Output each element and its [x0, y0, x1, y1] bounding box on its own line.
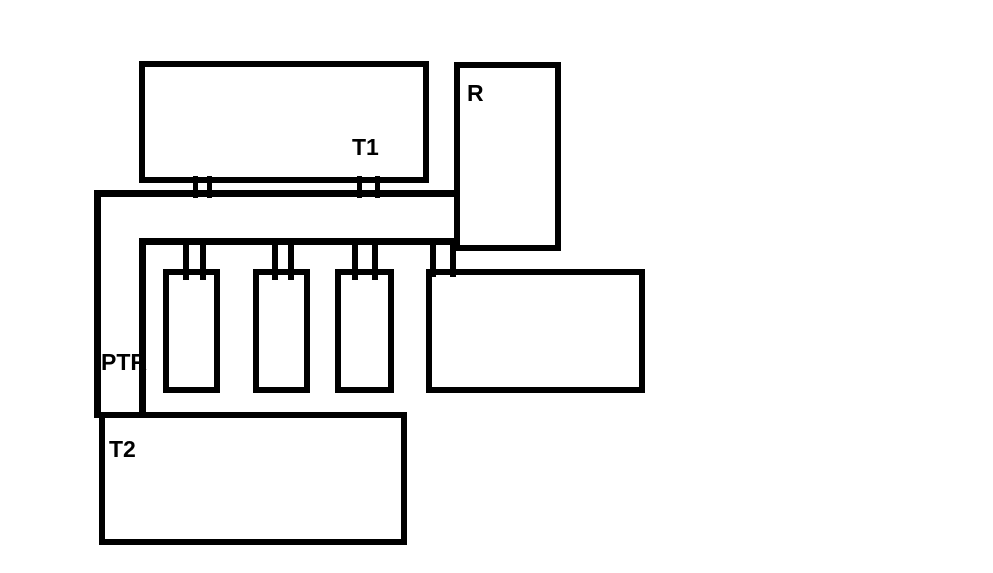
t1-label: T1 — [352, 136, 379, 159]
tube3-connector-left-line — [352, 240, 358, 280]
tube-2 — [253, 269, 310, 393]
right-block — [426, 269, 645, 393]
diagram-canvas: T1 R PTR T2 — [0, 0, 993, 573]
t1-connector-b-right-line — [375, 176, 380, 198]
ptr-label: PTR — [101, 351, 147, 374]
tube1-connector-left-line — [183, 240, 189, 280]
tube3-connector-right-line — [372, 240, 378, 280]
tube2-connector-left-line — [272, 240, 278, 280]
tube2-connector-right-line — [288, 240, 294, 280]
tube-1 — [163, 269, 220, 393]
manifold-top-line — [94, 190, 460, 197]
channel-left-inner-line — [139, 238, 146, 415]
t2-block — [99, 412, 407, 545]
tube1-connector-right-line — [200, 240, 206, 280]
r-label: R — [467, 82, 484, 105]
t2-label: T2 — [109, 438, 136, 461]
t1-connector-a-left-line — [193, 176, 198, 198]
tube-3 — [335, 269, 394, 393]
t1-connector-a-right-line — [207, 176, 212, 198]
t1-connector-b-left-line — [357, 176, 362, 198]
right-block-connector-right-line — [450, 240, 456, 277]
channel-left-outer-line — [94, 190, 101, 418]
right-block-connector-left-line — [430, 240, 436, 277]
t1-block — [139, 61, 429, 183]
